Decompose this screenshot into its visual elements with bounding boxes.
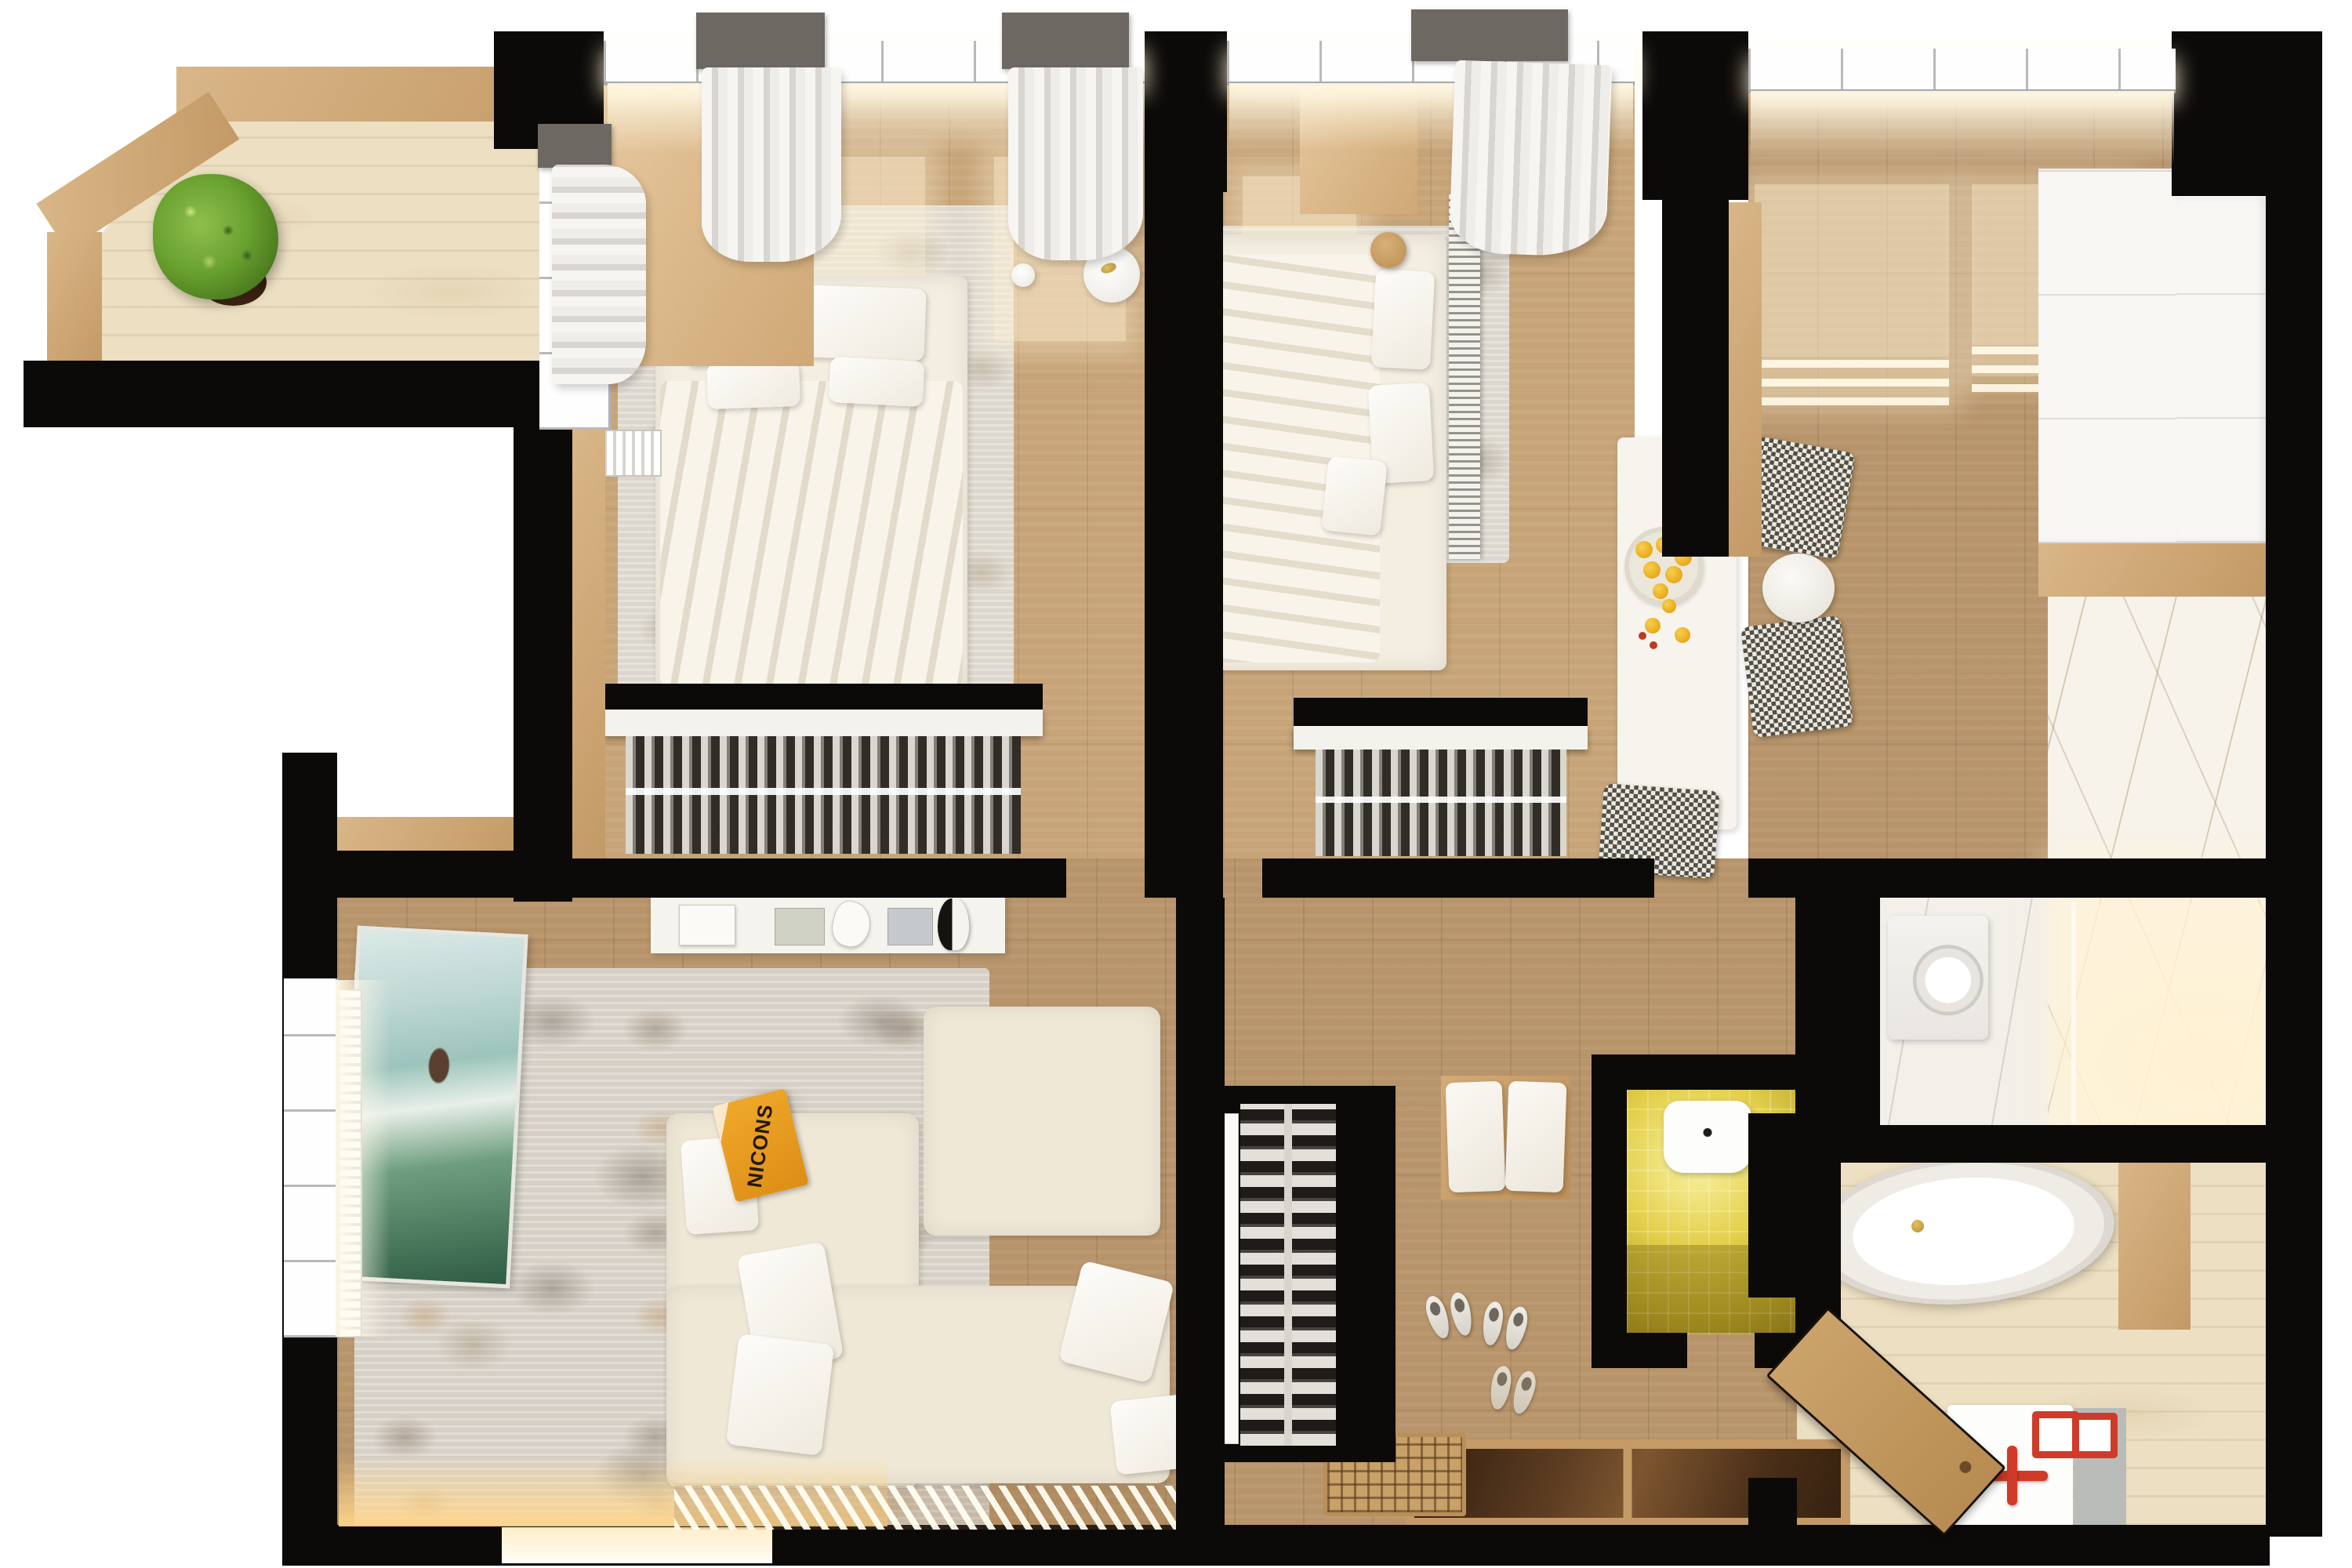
dining-chair-2 [1740, 615, 1853, 739]
balcony-parapet-left [47, 232, 102, 365]
lemon-5 [1665, 566, 1682, 583]
bed2-pelmet [1411, 9, 1568, 61]
lemon-7 [1653, 583, 1668, 599]
console-book-2 [775, 908, 825, 946]
bed1-curtain-2 [1008, 67, 1143, 260]
wall-bed1-bed2-top [1145, 31, 1227, 192]
wall-right-outer [2266, 157, 2322, 1537]
kitchen-window [1748, 49, 2176, 93]
bed1-pelmet-2 [1002, 13, 1129, 69]
wardrobe1-top-wall [604, 684, 1043, 712]
bed1-cup [1011, 263, 1035, 287]
bed1-curtain-1 [702, 67, 841, 262]
wall-bed2-kitchen-stub [1662, 200, 1729, 557]
living-left-window [284, 978, 339, 1338]
kitchen-window-glow [1751, 91, 2174, 165]
console-vase [938, 898, 969, 950]
bath-red-faucet-v [2007, 1446, 2017, 1505]
cherry-1 [1639, 632, 1646, 640]
wall-laundry-left [1795, 858, 1880, 1133]
sofa-pillow-2 [726, 1334, 834, 1456]
wall-wc-bottom-left [1592, 1333, 1687, 1368]
bed2-headboard-slats [1449, 194, 1480, 559]
bed2-stool [1370, 232, 1406, 268]
wardrobe2-clothes [1316, 750, 1566, 856]
wall-wc-left [1592, 1090, 1627, 1337]
bed1-duvet [660, 381, 963, 687]
washing-machine [1888, 916, 1988, 1040]
wall-bath-left-lower [1748, 1478, 1797, 1526]
bath-red-mirror-2 [2072, 1413, 2118, 1458]
bed1-left-wall-tan [572, 427, 605, 858]
shower-light [2078, 903, 2264, 1123]
bed1-pillow-2 [806, 285, 926, 361]
bed1-side-curtain [552, 165, 646, 384]
bed1-pillow-4 [829, 357, 925, 407]
bed1-pillow-3 [706, 361, 800, 409]
bath-wood-ledge [2118, 1151, 2190, 1330]
bed2-pillow-1 [1371, 269, 1435, 370]
console-book-1 [679, 905, 735, 946]
wall-laundry-bottom [1838, 1125, 2266, 1163]
balcony-plant [153, 174, 278, 299]
wall-bed2-kitchen-top [1642, 31, 1748, 200]
lemon-1 [1635, 541, 1653, 558]
wardrobe1-clothes [626, 736, 1021, 854]
bathtub-gold-drain [1911, 1220, 1924, 1232]
wc-toilet [1664, 1101, 1751, 1173]
lemon-loose-1 [1645, 618, 1661, 633]
living-bottom-slats [674, 1486, 1176, 1530]
wardrobe2-shelf [1294, 726, 1588, 750]
wall-bed1-left [514, 361, 572, 902]
hall-bench-cushion-2 [1505, 1081, 1567, 1192]
dining-stool-white [1762, 554, 1835, 622]
living-topleft-tan [337, 817, 521, 853]
floor-plan: NICONS [0, 0, 2352, 1568]
bed2-pillow-3 [1321, 456, 1388, 535]
wall-living-topleft [337, 851, 521, 898]
kitchen-counter-tan [2038, 543, 2266, 597]
bed1-pelmet-1 [696, 13, 825, 69]
wardrobe2-top-wall [1294, 698, 1588, 728]
kitchen-stub-tan [1729, 202, 1762, 557]
console-book-3 [887, 908, 933, 946]
kitchen-blind-slats [1755, 357, 1949, 405]
wall-balcony-bottom [24, 361, 517, 427]
living-window-glow [336, 980, 390, 1337]
bed2-curtain [1449, 60, 1612, 258]
magazine-title: NICONS [742, 1102, 779, 1189]
lemon-4 [1643, 561, 1661, 579]
shoe-tower-rack [1240, 1104, 1336, 1446]
wall-living-entry [1176, 898, 1225, 1529]
hall-bench-cushion-1 [1446, 1081, 1506, 1192]
shower-glass-line [2071, 902, 2076, 1123]
lemon-loose-2 [1675, 627, 1690, 643]
wardrobe1-shelf [604, 710, 1043, 736]
wall-bath-left-upper [1748, 1113, 1797, 1298]
wall-lintel-bed1 [549, 858, 1066, 898]
living-bottom-window [502, 1527, 772, 1563]
lemon-loose-3 [1662, 599, 1676, 613]
cherry-2 [1650, 641, 1657, 649]
sofa-chaise [924, 1007, 1160, 1236]
wall-bed1-bed2 [1145, 192, 1223, 898]
kitchen-cabinet-side [2176, 198, 2266, 543]
bed1-side-pelmet [538, 124, 612, 168]
wall-laundry-top [1838, 858, 2266, 898]
wall-lintel-bed2 [1262, 858, 1654, 898]
